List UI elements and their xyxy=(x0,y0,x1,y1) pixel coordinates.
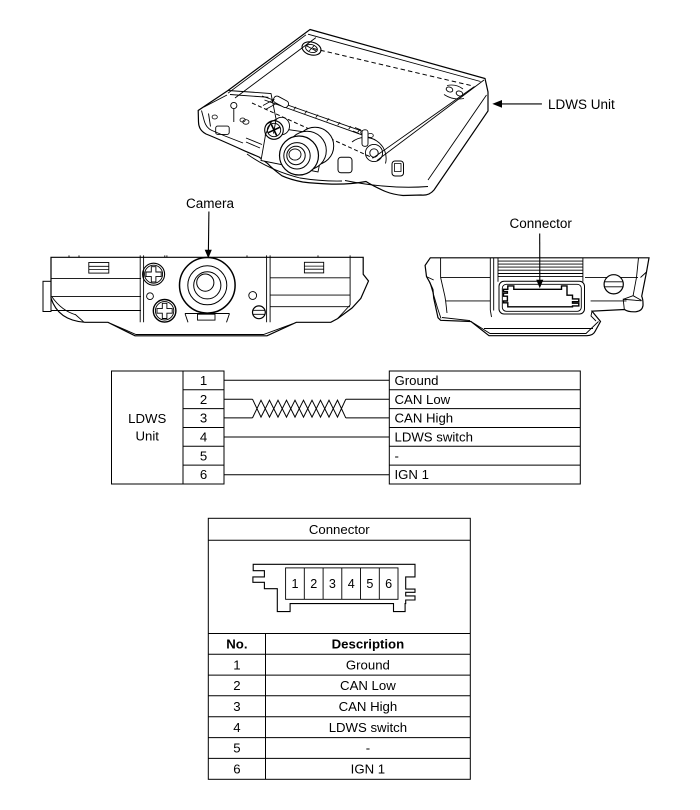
svg-text:Connector: Connector xyxy=(510,216,573,231)
svg-text:2: 2 xyxy=(233,678,240,693)
svg-text:6: 6 xyxy=(233,762,240,777)
svg-text:4: 4 xyxy=(348,577,355,591)
svg-text:Camera: Camera xyxy=(186,196,235,211)
svg-text:LDWS switch: LDWS switch xyxy=(395,429,473,444)
svg-text:IGN 1: IGN 1 xyxy=(351,762,385,777)
svg-text:5: 5 xyxy=(366,577,373,591)
svg-text:-: - xyxy=(366,741,370,756)
svg-text:2: 2 xyxy=(200,392,207,407)
svg-text:5: 5 xyxy=(233,741,240,756)
svg-text:Description: Description xyxy=(332,637,405,652)
svg-text:1: 1 xyxy=(200,373,207,388)
svg-text:3: 3 xyxy=(329,577,336,591)
svg-text:LDWS switch: LDWS switch xyxy=(329,720,407,735)
svg-text:-: - xyxy=(395,448,399,463)
svg-text:CAN Low: CAN Low xyxy=(395,392,451,407)
svg-text:3: 3 xyxy=(200,411,207,426)
svg-text:Ground: Ground xyxy=(346,657,390,672)
svg-text:No.: No. xyxy=(226,637,247,652)
svg-text:4: 4 xyxy=(233,720,240,735)
svg-text:5: 5 xyxy=(200,448,207,463)
svg-text:CAN High: CAN High xyxy=(339,699,398,714)
svg-text:CAN Low: CAN Low xyxy=(340,678,396,693)
svg-text:CAN High: CAN High xyxy=(395,411,454,426)
svg-text:1: 1 xyxy=(233,657,240,672)
svg-text:Connector: Connector xyxy=(309,522,370,537)
svg-text:3: 3 xyxy=(233,699,240,714)
svg-text:LDWS: LDWS xyxy=(128,411,166,426)
svg-text:Ground: Ground xyxy=(395,373,439,388)
svg-text:6: 6 xyxy=(385,577,392,591)
svg-text:2: 2 xyxy=(310,577,317,591)
svg-text:IGN 1: IGN 1 xyxy=(395,467,429,482)
svg-text:LDWS Unit: LDWS Unit xyxy=(548,97,615,112)
svg-text:4: 4 xyxy=(200,429,207,444)
svg-text:6: 6 xyxy=(200,467,207,482)
svg-text:Unit: Unit xyxy=(135,428,159,443)
svg-text:1: 1 xyxy=(291,577,298,591)
